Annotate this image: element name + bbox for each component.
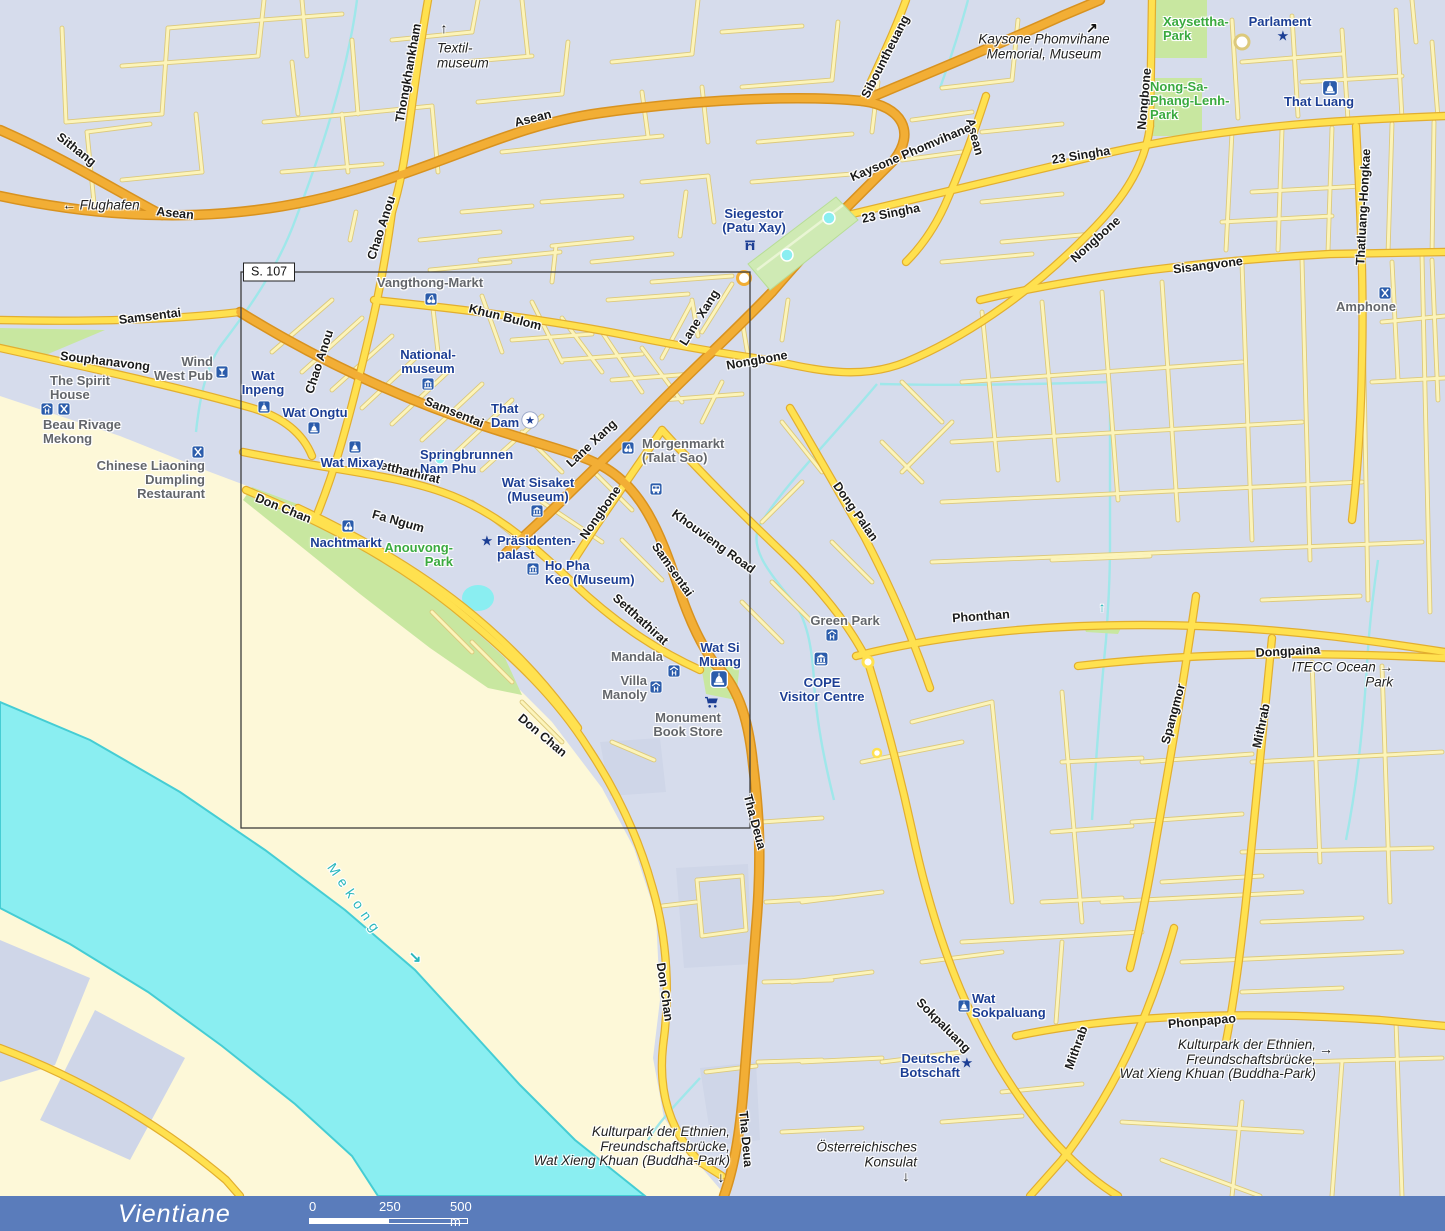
museum-icon	[422, 378, 435, 391]
map-label-sokpaluang: Sokpaluang	[913, 996, 973, 1056]
restaurant-icon	[1379, 287, 1392, 300]
map-label-itecc-ocean: ITECC Ocean → Park	[1292, 660, 1393, 689]
map-label-springbrunnen: Springbrunnen Nam Phu	[420, 448, 513, 476]
map-label-don-chan: Don Chan	[515, 712, 569, 760]
map-label-fa-ngum: Fa Ngum	[370, 508, 425, 536]
museum-icon	[527, 563, 540, 576]
map-label-nongbone: Nongbone	[578, 484, 625, 542]
map-label-phonpapao: Phonpapao	[1168, 1012, 1237, 1031]
direction-arrow-icon: ↑	[441, 20, 448, 36]
temple-icon	[349, 441, 362, 454]
map-label-green-park: Green Park	[810, 614, 879, 628]
map-label-sibountheuang: Sibountheuang	[859, 13, 912, 100]
map-label-thatluang-hongkae: Thatluang-Hongkae	[1354, 148, 1374, 265]
direction-arrow-icon: →	[1319, 1041, 1333, 1057]
map-label-monument: Monument Book Store	[653, 711, 722, 739]
svg-text:H: H	[671, 668, 676, 677]
scale-bar-rule	[309, 1218, 468, 1224]
map-label-phonthan: Phonthan	[952, 608, 1010, 625]
map-label-sithang: Sithang	[54, 131, 98, 170]
map-label-samsentai: Samsentai	[422, 395, 485, 431]
direction-arrow-icon: ↗	[1086, 20, 1098, 37]
svg-text:H: H	[653, 684, 658, 693]
scale-bar-segment	[310, 1219, 389, 1223]
map-label-wat-sisaket: Wat Sisaket (Museum)	[502, 476, 575, 504]
map-label-khouvieng-road: Khouvieng Road	[669, 507, 757, 576]
direction-arrow-icon: ↓	[903, 1168, 910, 1184]
temple-icon	[308, 422, 321, 435]
map-label-nongbone: Nongbone	[1136, 68, 1155, 131]
landmark-star-icon: ★	[479, 533, 496, 550]
that-dam-star-icon: ★	[521, 411, 540, 430]
map-label-samsentai: Samsentai	[649, 541, 696, 600]
map-label-wat-mixay: Wat Mixay	[320, 456, 383, 470]
map-label-kaysone-phomvihane: Kaysone Phomvihane	[849, 121, 974, 184]
map-label-nachtmarkt: Nachtmarkt	[310, 536, 382, 550]
museum-icon	[814, 652, 829, 667]
map-label-nongbone: Nongbone	[1069, 214, 1124, 265]
map-sheet-ref: S. 107	[243, 263, 295, 282]
hotel-icon: H	[650, 681, 663, 694]
map-label-that: That Dam	[491, 402, 519, 430]
map-label-morgenmarkt: Morgenmarkt (Talat Sao)	[642, 437, 724, 465]
bookstore-cart-icon	[704, 696, 720, 709]
map-title: Vientiane	[118, 1200, 231, 1229]
map-label-don-chan: Don Chan	[253, 492, 313, 527]
map-label-villa: Villa Manoly	[602, 674, 647, 702]
map-label-chao-anou: Chao Anou	[303, 328, 336, 395]
map-label-national: National- museum	[400, 348, 456, 376]
hotel-icon: H	[41, 403, 54, 416]
scale-end: 500 m	[450, 1199, 472, 1229]
scale-mid: 250	[379, 1199, 401, 1214]
map-label-asean: Asean	[963, 117, 986, 157]
map-label-vangthong-markt: Vangthong-Markt	[377, 276, 483, 290]
map-label-amphone: Amphone	[1336, 300, 1396, 314]
map-label-layer: SithangAseanAseanAseanThongkhankhamChao …	[0, 0, 1445, 1196]
map-label-siegestor: Siegestor (Patu Xay)	[722, 207, 786, 235]
map-label-wat-si: Wat Si Muang	[699, 641, 741, 669]
hotel-icon: H	[668, 665, 681, 678]
map-label-sisangvone: Sisangvone	[1172, 255, 1243, 277]
temple-icon	[258, 401, 271, 414]
svg-text:★: ★	[961, 1055, 974, 1071]
bus-stop-icon	[650, 483, 663, 496]
map-label-setthathirat: Setthathirat	[371, 457, 442, 487]
map-label-cope: COPE Visitor Centre	[779, 676, 864, 704]
svg-text:H: H	[44, 406, 49, 415]
market-icon	[425, 293, 438, 306]
scale-start: 0	[309, 1199, 316, 1214]
map-label-tha-deua: Tha Deua	[740, 793, 768, 851]
map-label-lane-xang: Lane Xang	[678, 288, 723, 349]
map-label-thongkhankham: Thongkhankham	[394, 23, 425, 124]
map-label-ho-pha: Ho Pha Keo (Museum)	[545, 559, 635, 587]
museum-icon	[531, 505, 544, 518]
map-label-pr-sidenten: Präsidenten- palast	[497, 534, 576, 562]
map-label-that-luang: That Luang	[1284, 95, 1354, 109]
city-map[interactable]: SithangAseanAseanAseanThongkhankhamChao …	[0, 0, 1445, 1231]
landmark-star-icon: ★	[1275, 28, 1292, 45]
map-label-textil: Textil- museum	[437, 41, 489, 70]
map-label-anouvong: Anouvong- Park	[384, 541, 453, 569]
map-label-souphanavong: Souphanavong	[59, 350, 150, 374]
bar-icon	[216, 366, 229, 379]
map-label-samsentai: Samsentai	[118, 306, 182, 327]
map-label-dongpaina: Dongpaina	[1255, 644, 1320, 661]
map-label-mandala: Mandala	[611, 650, 663, 664]
map-footer-bar: Vientiane 0 250 500 m	[0, 1196, 1445, 1231]
map-label-23-singha: 23 Singha	[1051, 145, 1111, 168]
map-label-mithrab: Mithrab	[1251, 703, 1274, 750]
hotel-icon: H	[826, 629, 839, 642]
temple-icon	[710, 670, 728, 688]
temple-icon	[1322, 80, 1338, 96]
map-label-khun-bulom: Khun Bulom	[467, 302, 542, 333]
map-label-mithrab: Mithrab	[1063, 1024, 1091, 1071]
map-label-asean: Asean	[156, 205, 195, 222]
map-label-mekong: Mekong	[324, 861, 386, 940]
map-label-nong-sa: Nong-Sa- Phang-Lenh- Park	[1150, 80, 1229, 122]
map-label-parlament: Parlament	[1249, 15, 1312, 29]
map-label-kulturpark-der-ethnien: Kulturpark der Ethnien, Freundschaftsbrü…	[1120, 1038, 1316, 1082]
svg-text:★: ★	[525, 415, 535, 427]
direction-arrow-icon: ↘	[409, 948, 422, 966]
svg-text:★: ★	[1277, 28, 1290, 44]
restaurant-icon	[192, 446, 205, 459]
restaurant-icon	[58, 403, 71, 416]
svg-text:★: ★	[481, 533, 494, 549]
map-label-wind: Wind West Pub	[154, 355, 213, 383]
direction-arrow-icon: ↓	[718, 1169, 725, 1185]
map-label-sterreichisches: Österreichisches Konsulat	[816, 1140, 917, 1169]
map-label-lane-xang: Lane Xang	[564, 418, 619, 471]
map-label-chinese-liaoning: Chinese Liaoning Dumpling Restaurant	[97, 459, 205, 501]
map-label-wat: Wat Inpeng	[242, 369, 285, 397]
map-label-wat: Wat Sokpaluang	[972, 992, 1046, 1020]
map-label-dong-palan: Dong Palan	[830, 480, 881, 544]
market-icon	[622, 442, 635, 455]
patuxay-gate-icon	[744, 239, 757, 252]
map-label-asean: Asean	[513, 108, 553, 130]
map-label-spangmor: Spangmor	[1159, 682, 1188, 745]
map-label-deutsche: Deutsche Botschaft	[900, 1052, 960, 1080]
map-label-nongbone: Nongbone	[725, 349, 788, 373]
map-label-don-chan: Don Chan	[653, 962, 675, 1022]
map-label-setthathirat: Setthathirat	[610, 592, 671, 649]
temple-icon	[958, 1000, 971, 1013]
map-label-kulturpark-der-ethnien: Kulturpark der Ethnien, Freundschaftsbrü…	[534, 1125, 730, 1169]
direction-arrow-icon: ↑	[1099, 600, 1106, 615]
market-icon	[342, 520, 355, 533]
map-label-23-singha: 23 Singha	[861, 202, 922, 227]
map-label-xaysettha: Xaysettha- Park	[1163, 15, 1229, 43]
map-label-kaysone-phomvihane: Kaysone Phomvihane Memorial, Museum	[978, 32, 1109, 61]
map-label-chao-anou: Chao Anou	[365, 194, 398, 261]
map-label-flughafen: ← Flughafen	[62, 199, 139, 214]
svg-text:H: H	[829, 632, 834, 641]
map-label-tha-deua: Tha Deua	[736, 1110, 754, 1167]
landmark-star-icon: ★	[959, 1055, 976, 1072]
map-label-beau-rivage: Beau Rivage Mekong	[43, 418, 121, 446]
map-label-wat-ongtu: Wat Ongtu	[282, 406, 347, 420]
map-label-the-spirit: The Spirit House	[50, 374, 110, 402]
